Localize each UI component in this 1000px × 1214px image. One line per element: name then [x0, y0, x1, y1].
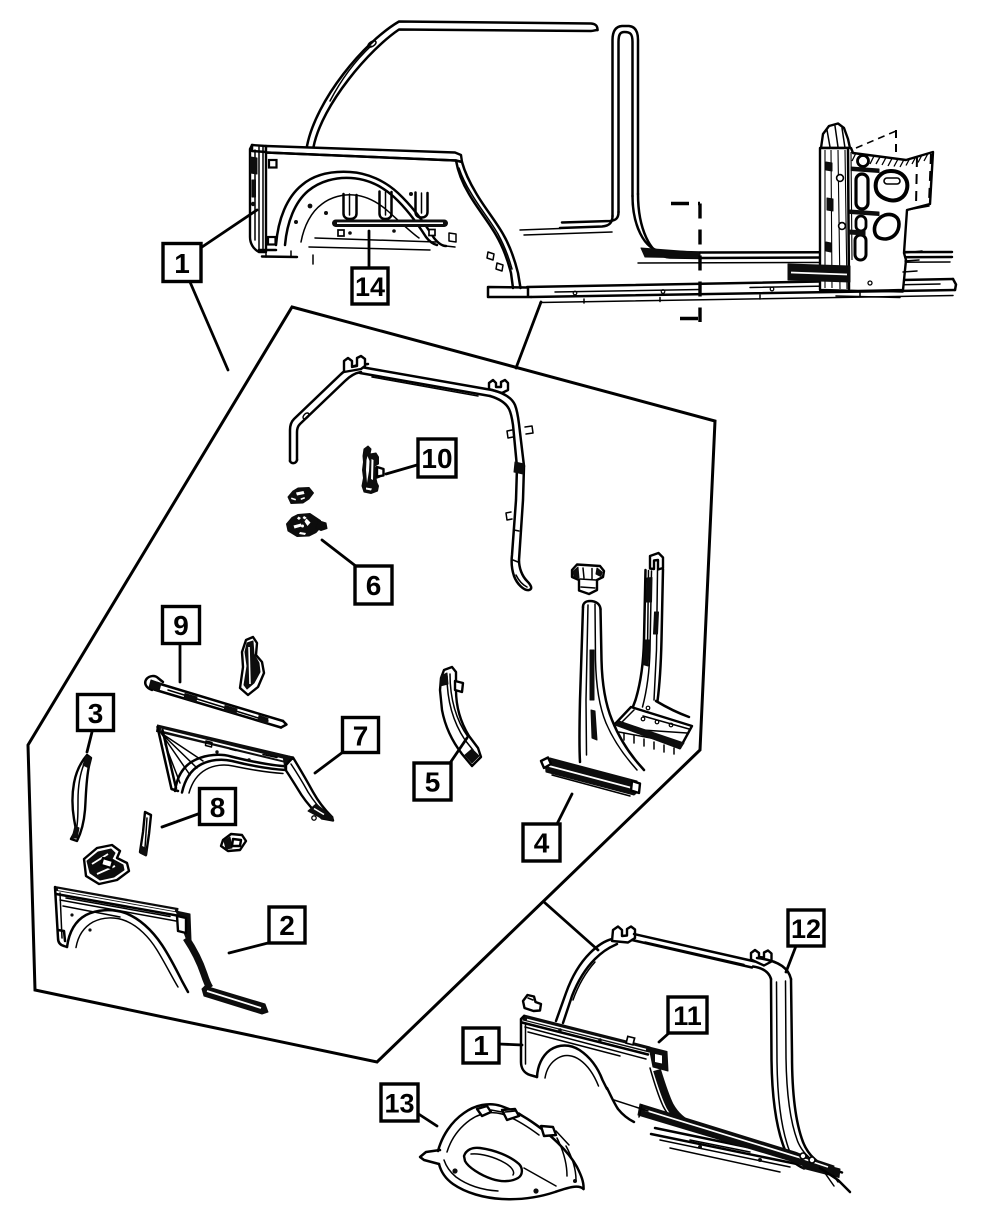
svg-text:10: 10	[421, 443, 452, 474]
svg-text:9: 9	[173, 610, 189, 641]
svg-text:2: 2	[279, 910, 295, 941]
svg-text:1: 1	[174, 248, 190, 279]
svg-text:7: 7	[353, 721, 369, 752]
svg-text:13: 13	[384, 1089, 414, 1119]
svg-text:12: 12	[791, 914, 821, 944]
svg-text:14: 14	[355, 272, 385, 302]
svg-text:5: 5	[425, 767, 441, 798]
svg-text:11: 11	[673, 1001, 702, 1031]
svg-text:8: 8	[210, 792, 226, 823]
svg-text:6: 6	[366, 570, 382, 601]
svg-text:4: 4	[534, 828, 550, 859]
svg-text:3: 3	[88, 698, 104, 729]
svg-text:1: 1	[473, 1030, 489, 1061]
